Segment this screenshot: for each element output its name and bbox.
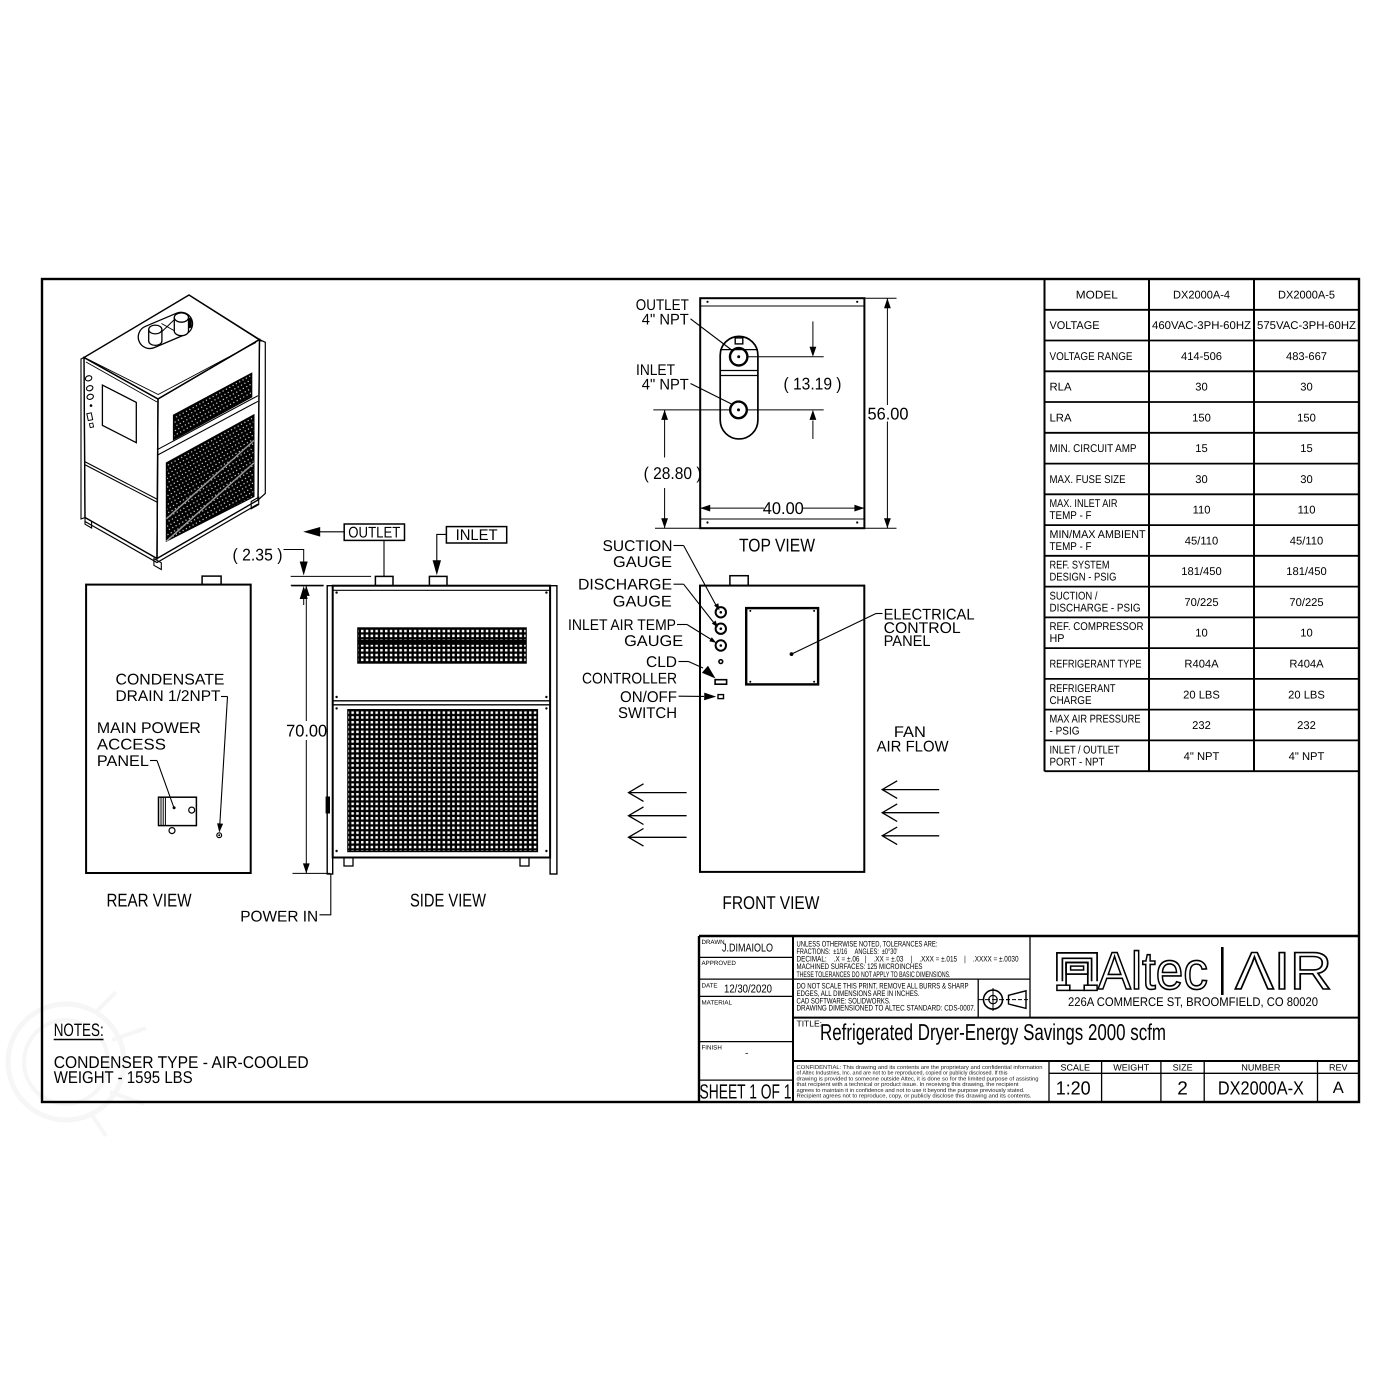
svg-text:NOTES:: NOTES:	[54, 1020, 104, 1040]
svg-text:MODEL: MODEL	[1076, 289, 1118, 301]
svg-text:MAX. FUSE SIZE: MAX. FUSE SIZE	[1050, 474, 1126, 486]
svg-text:POWER IN: POWER IN	[240, 909, 318, 926]
svg-text:WEIGHT - 1595 LBS: WEIGHT - 1595 LBS	[54, 1068, 193, 1087]
svg-text:SWITCH: SWITCH	[618, 705, 677, 722]
svg-text:CHARGE: CHARGE	[1050, 695, 1092, 707]
svg-text:SHEET 1 OF 1: SHEET 1 OF 1	[700, 1081, 792, 1104]
svg-text:VOLTAGE: VOLTAGE	[1050, 320, 1100, 332]
svg-text:10: 10	[1300, 628, 1312, 640]
svg-text:20 LBS: 20 LBS	[1288, 689, 1325, 701]
svg-text:MAIN POWER: MAIN POWER	[97, 720, 201, 737]
svg-text:12/30/2020: 12/30/2020	[724, 984, 772, 996]
svg-text:70/225: 70/225	[1289, 597, 1323, 609]
svg-text:30: 30	[1300, 382, 1312, 394]
svg-text:RLA: RLA	[1050, 382, 1073, 394]
svg-text:2: 2	[1177, 1079, 1188, 1100]
svg-text:SIDE VIEW: SIDE VIEW	[410, 890, 486, 911]
svg-text:MAX. INLET AIR: MAX. INLET AIR	[1050, 498, 1118, 510]
svg-text:CONDENSATE: CONDENSATE	[116, 672, 225, 689]
svg-text:GAUGE: GAUGE	[613, 554, 672, 571]
svg-text:INLET AIR TEMP: INLET AIR TEMP	[568, 617, 676, 634]
svg-text:R404A: R404A	[1289, 659, 1324, 671]
svg-text:( 28.80 ): ( 28.80 )	[644, 464, 702, 483]
svg-text:TEMP - F: TEMP - F	[1050, 510, 1092, 522]
svg-text:4" NPT: 4" NPT	[1289, 751, 1325, 763]
svg-text:15: 15	[1300, 443, 1312, 455]
svg-text:ON/OFF: ON/OFF	[620, 689, 677, 706]
svg-text:REF. COMPRESSOR: REF. COMPRESSOR	[1050, 621, 1144, 633]
svg-text:DX2000A-5: DX2000A-5	[1278, 289, 1335, 301]
svg-text:REV: REV	[1329, 1063, 1348, 1073]
svg-text:DX2000A-X: DX2000A-X	[1218, 1079, 1304, 1100]
svg-text:REF. SYSTEM: REF. SYSTEM	[1050, 560, 1110, 572]
svg-text:PORT - NPT: PORT - NPT	[1050, 756, 1105, 768]
svg-text:4" NPT: 4" NPT	[642, 377, 689, 394]
svg-text:- PSIG: - PSIG	[1050, 726, 1080, 738]
svg-text:DESIGN - PSIG: DESIGN - PSIG	[1050, 572, 1117, 584]
svg-text:15: 15	[1195, 443, 1207, 455]
svg-text:232: 232	[1297, 720, 1316, 732]
svg-text:483-667: 483-667	[1286, 351, 1327, 363]
svg-text:PANEL: PANEL	[884, 633, 931, 650]
svg-text:Altec: Altec	[1098, 942, 1208, 1001]
svg-text:TOP VIEW: TOP VIEW	[739, 535, 815, 556]
svg-text:MAX AIR PRESSURE: MAX AIR PRESSURE	[1050, 714, 1141, 726]
svg-text:10: 10	[1195, 628, 1207, 640]
svg-text:INLET: INLET	[456, 527, 498, 544]
svg-text:HP: HP	[1050, 633, 1065, 645]
svg-text:30: 30	[1195, 474, 1207, 486]
svg-text:ΛIR: ΛIR	[1235, 942, 1332, 1001]
svg-text:DISCHARGE - PSIG: DISCHARGE - PSIG	[1050, 603, 1141, 615]
svg-text:150: 150	[1297, 412, 1316, 424]
svg-text:DX2000A-4: DX2000A-4	[1173, 289, 1230, 301]
svg-text:181/450: 181/450	[1286, 566, 1326, 578]
svg-text:THESE TOLERANCES DO NOT APPLY: THESE TOLERANCES DO NOT APPLY TO BASIC D…	[797, 970, 951, 979]
svg-text:GAUGE: GAUGE	[613, 594, 672, 611]
svg-text:232: 232	[1192, 720, 1211, 732]
svg-text:20 LBS: 20 LBS	[1183, 689, 1220, 701]
svg-text:1:20: 1:20	[1056, 1079, 1091, 1100]
svg-text:WEIGHT: WEIGHT	[1113, 1063, 1149, 1073]
svg-text:110: 110	[1298, 505, 1316, 517]
svg-text:MIN/MAX AMBIENT: MIN/MAX AMBIENT	[1050, 529, 1146, 541]
svg-text:APPROVED: APPROVED	[702, 960, 737, 967]
svg-text:110: 110	[1193, 505, 1211, 517]
svg-text:45/110: 45/110	[1185, 536, 1218, 548]
svg-text:SIZE: SIZE	[1173, 1063, 1193, 1073]
svg-text:-: -	[745, 1048, 748, 1059]
svg-text:DISCHARGE: DISCHARGE	[578, 577, 672, 594]
svg-text:40.00: 40.00	[763, 499, 804, 518]
svg-text:MIN. CIRCUIT AMP: MIN. CIRCUIT AMP	[1050, 443, 1137, 455]
svg-text:FINISH: FINISH	[702, 1045, 722, 1052]
svg-text:DRAWING DIMENSIONED TO ALTEC S: DRAWING DIMENSIONED TO ALTEC STANDARD: C…	[797, 1004, 976, 1013]
svg-text:226A COMMERCE ST, BROOMFIELD,: 226A COMMERCE ST, BROOMFIELD, CO 80020	[1068, 995, 1318, 1009]
svg-text:REFRIGERANT TYPE: REFRIGERANT TYPE	[1050, 659, 1142, 671]
svg-text:30: 30	[1195, 382, 1207, 394]
svg-text:INLET / OUTLET: INLET / OUTLET	[1050, 744, 1120, 756]
svg-text:FRONT VIEW: FRONT VIEW	[722, 892, 819, 913]
svg-text:ACCESS: ACCESS	[97, 736, 166, 753]
svg-text:NUMBER: NUMBER	[1241, 1063, 1281, 1073]
svg-text:R404A: R404A	[1184, 659, 1219, 671]
svg-text:REAR VIEW: REAR VIEW	[107, 889, 192, 910]
svg-text:70.00: 70.00	[286, 721, 327, 740]
svg-text:SUCTION: SUCTION	[603, 538, 673, 555]
svg-text:CLD: CLD	[646, 654, 677, 671]
svg-text:GAUGE: GAUGE	[624, 633, 683, 650]
svg-text:70/225: 70/225	[1184, 597, 1218, 609]
svg-text:575VAC-3PH-60HZ: 575VAC-3PH-60HZ	[1257, 320, 1356, 332]
svg-text:460VAC-3PH-60HZ: 460VAC-3PH-60HZ	[1152, 320, 1251, 332]
svg-text:CONTROLLER: CONTROLLER	[582, 671, 677, 688]
svg-text:DATE: DATE	[702, 983, 718, 990]
svg-text:PANEL: PANEL	[97, 753, 149, 770]
svg-text:TEMP - F: TEMP - F	[1050, 541, 1092, 553]
svg-text:56.00: 56.00	[868, 405, 909, 424]
svg-text:TITLE:: TITLE:	[797, 1019, 823, 1029]
svg-text:( 2.35 ): ( 2.35 )	[233, 546, 283, 565]
svg-text:J.DIMAIOLO: J.DIMAIOLO	[722, 943, 773, 955]
svg-text:414-506: 414-506	[1181, 351, 1222, 363]
svg-text:OUTLET: OUTLET	[348, 524, 400, 541]
svg-text:AIR FLOW: AIR FLOW	[877, 739, 949, 756]
svg-text:181/450: 181/450	[1181, 566, 1221, 578]
svg-text:MATERIAL: MATERIAL	[702, 1000, 733, 1007]
svg-text:30: 30	[1300, 474, 1312, 486]
svg-text:( 13.19 ): ( 13.19 )	[784, 375, 842, 394]
svg-text:4" NPT: 4" NPT	[642, 312, 689, 329]
svg-text:REFRIGERANT: REFRIGERANT	[1050, 683, 1116, 695]
svg-text:150: 150	[1192, 412, 1211, 424]
svg-text:A: A	[1333, 1079, 1344, 1097]
svg-text:LRA: LRA	[1050, 412, 1073, 424]
svg-text:Refrigerated Dryer-Energy Savi: Refrigerated Dryer-Energy Savings 2000 s…	[820, 1019, 1166, 1045]
svg-text:Recipient agrees not to reprod: Recipient agrees not to reproduce, copy,…	[797, 1093, 1032, 1100]
svg-text:45/110: 45/110	[1290, 536, 1323, 548]
svg-text:4" NPT: 4" NPT	[1184, 751, 1220, 763]
svg-text:DRAIN 1/2NPT: DRAIN 1/2NPT	[116, 688, 222, 705]
svg-text:VOLTAGE RANGE: VOLTAGE RANGE	[1050, 351, 1133, 363]
svg-text:SUCTION /: SUCTION /	[1050, 591, 1099, 603]
svg-text:SCALE: SCALE	[1061, 1063, 1091, 1073]
